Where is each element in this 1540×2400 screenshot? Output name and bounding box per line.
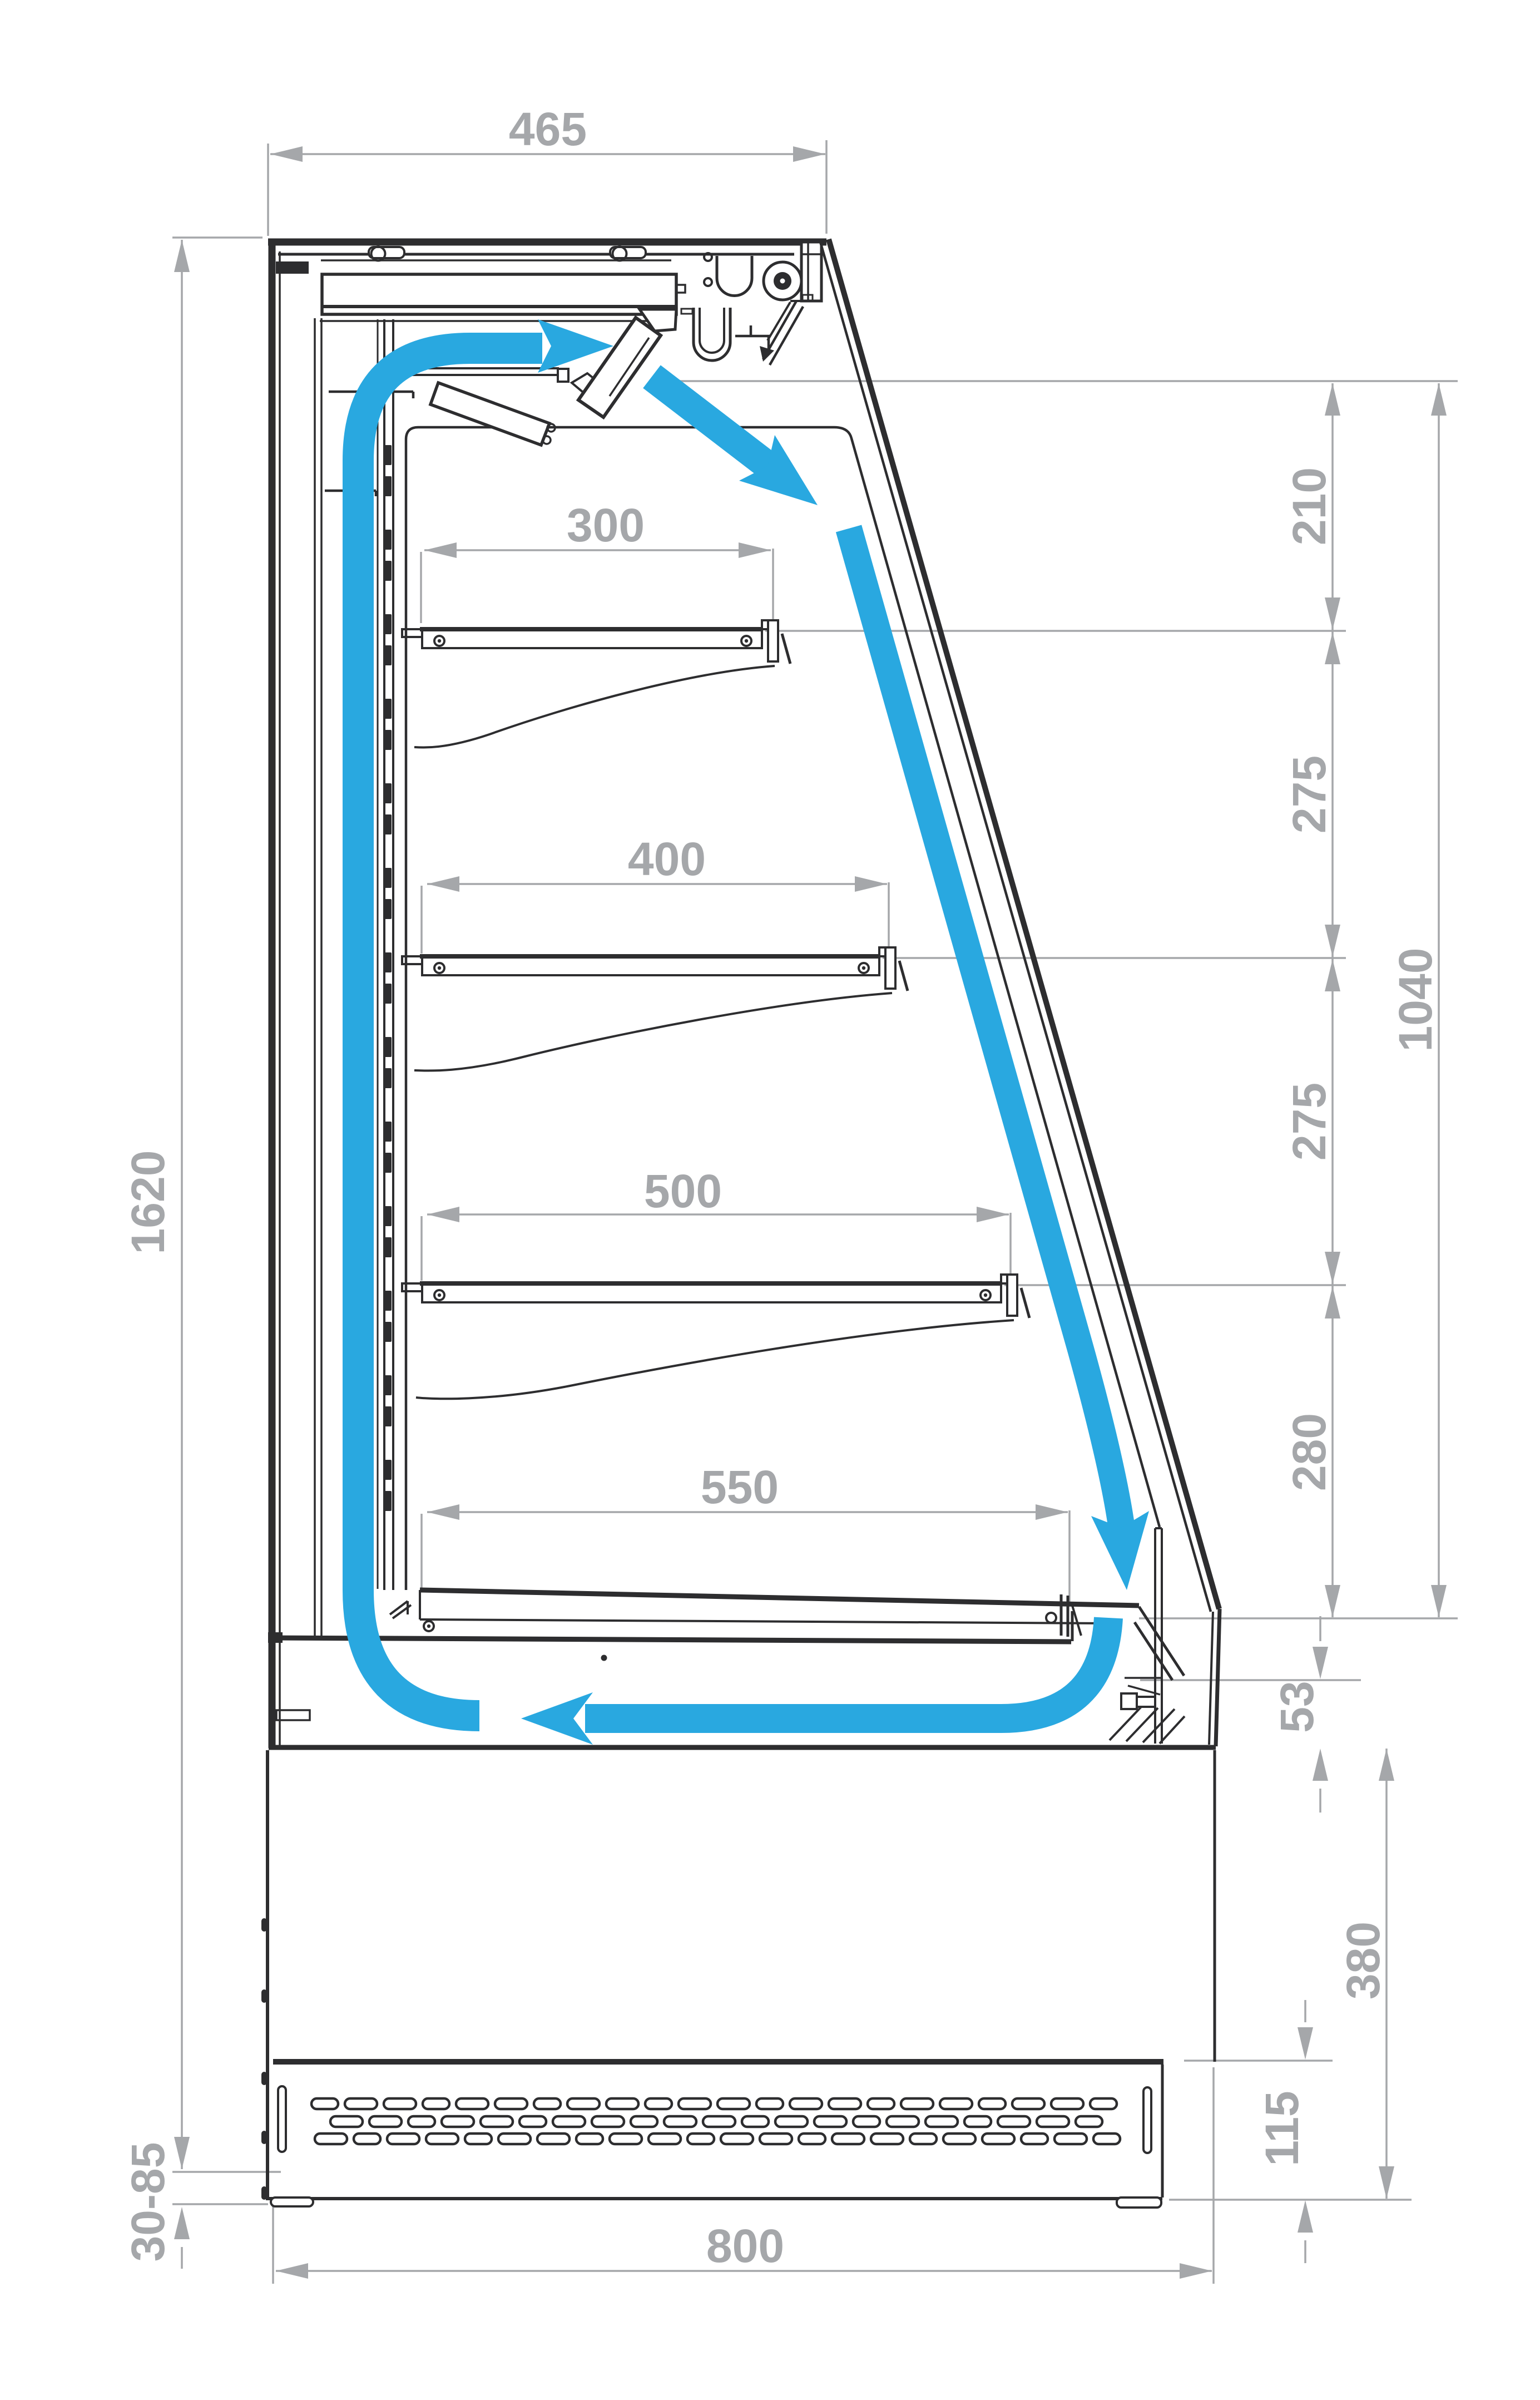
- svg-text:1040: 1040: [1389, 948, 1442, 1052]
- svg-text:275: 275: [1283, 1083, 1335, 1161]
- svg-text:280: 280: [1283, 1413, 1335, 1491]
- svg-text:380: 380: [1337, 1922, 1389, 1999]
- svg-text:550: 550: [701, 1461, 779, 1513]
- svg-text:465: 465: [509, 103, 587, 155]
- svg-text:210: 210: [1283, 467, 1335, 545]
- svg-text:115: 115: [1256, 2091, 1308, 2166]
- svg-text:53: 53: [1271, 1681, 1323, 1732]
- svg-text:1620: 1620: [122, 1150, 174, 1255]
- svg-text:800: 800: [706, 2220, 784, 2272]
- svg-text:400: 400: [628, 833, 706, 885]
- svg-text:275: 275: [1283, 755, 1335, 833]
- svg-text:500: 500: [644, 1165, 722, 1217]
- svg-text:300: 300: [567, 499, 645, 551]
- svg-text:30-85: 30-85: [122, 2142, 174, 2262]
